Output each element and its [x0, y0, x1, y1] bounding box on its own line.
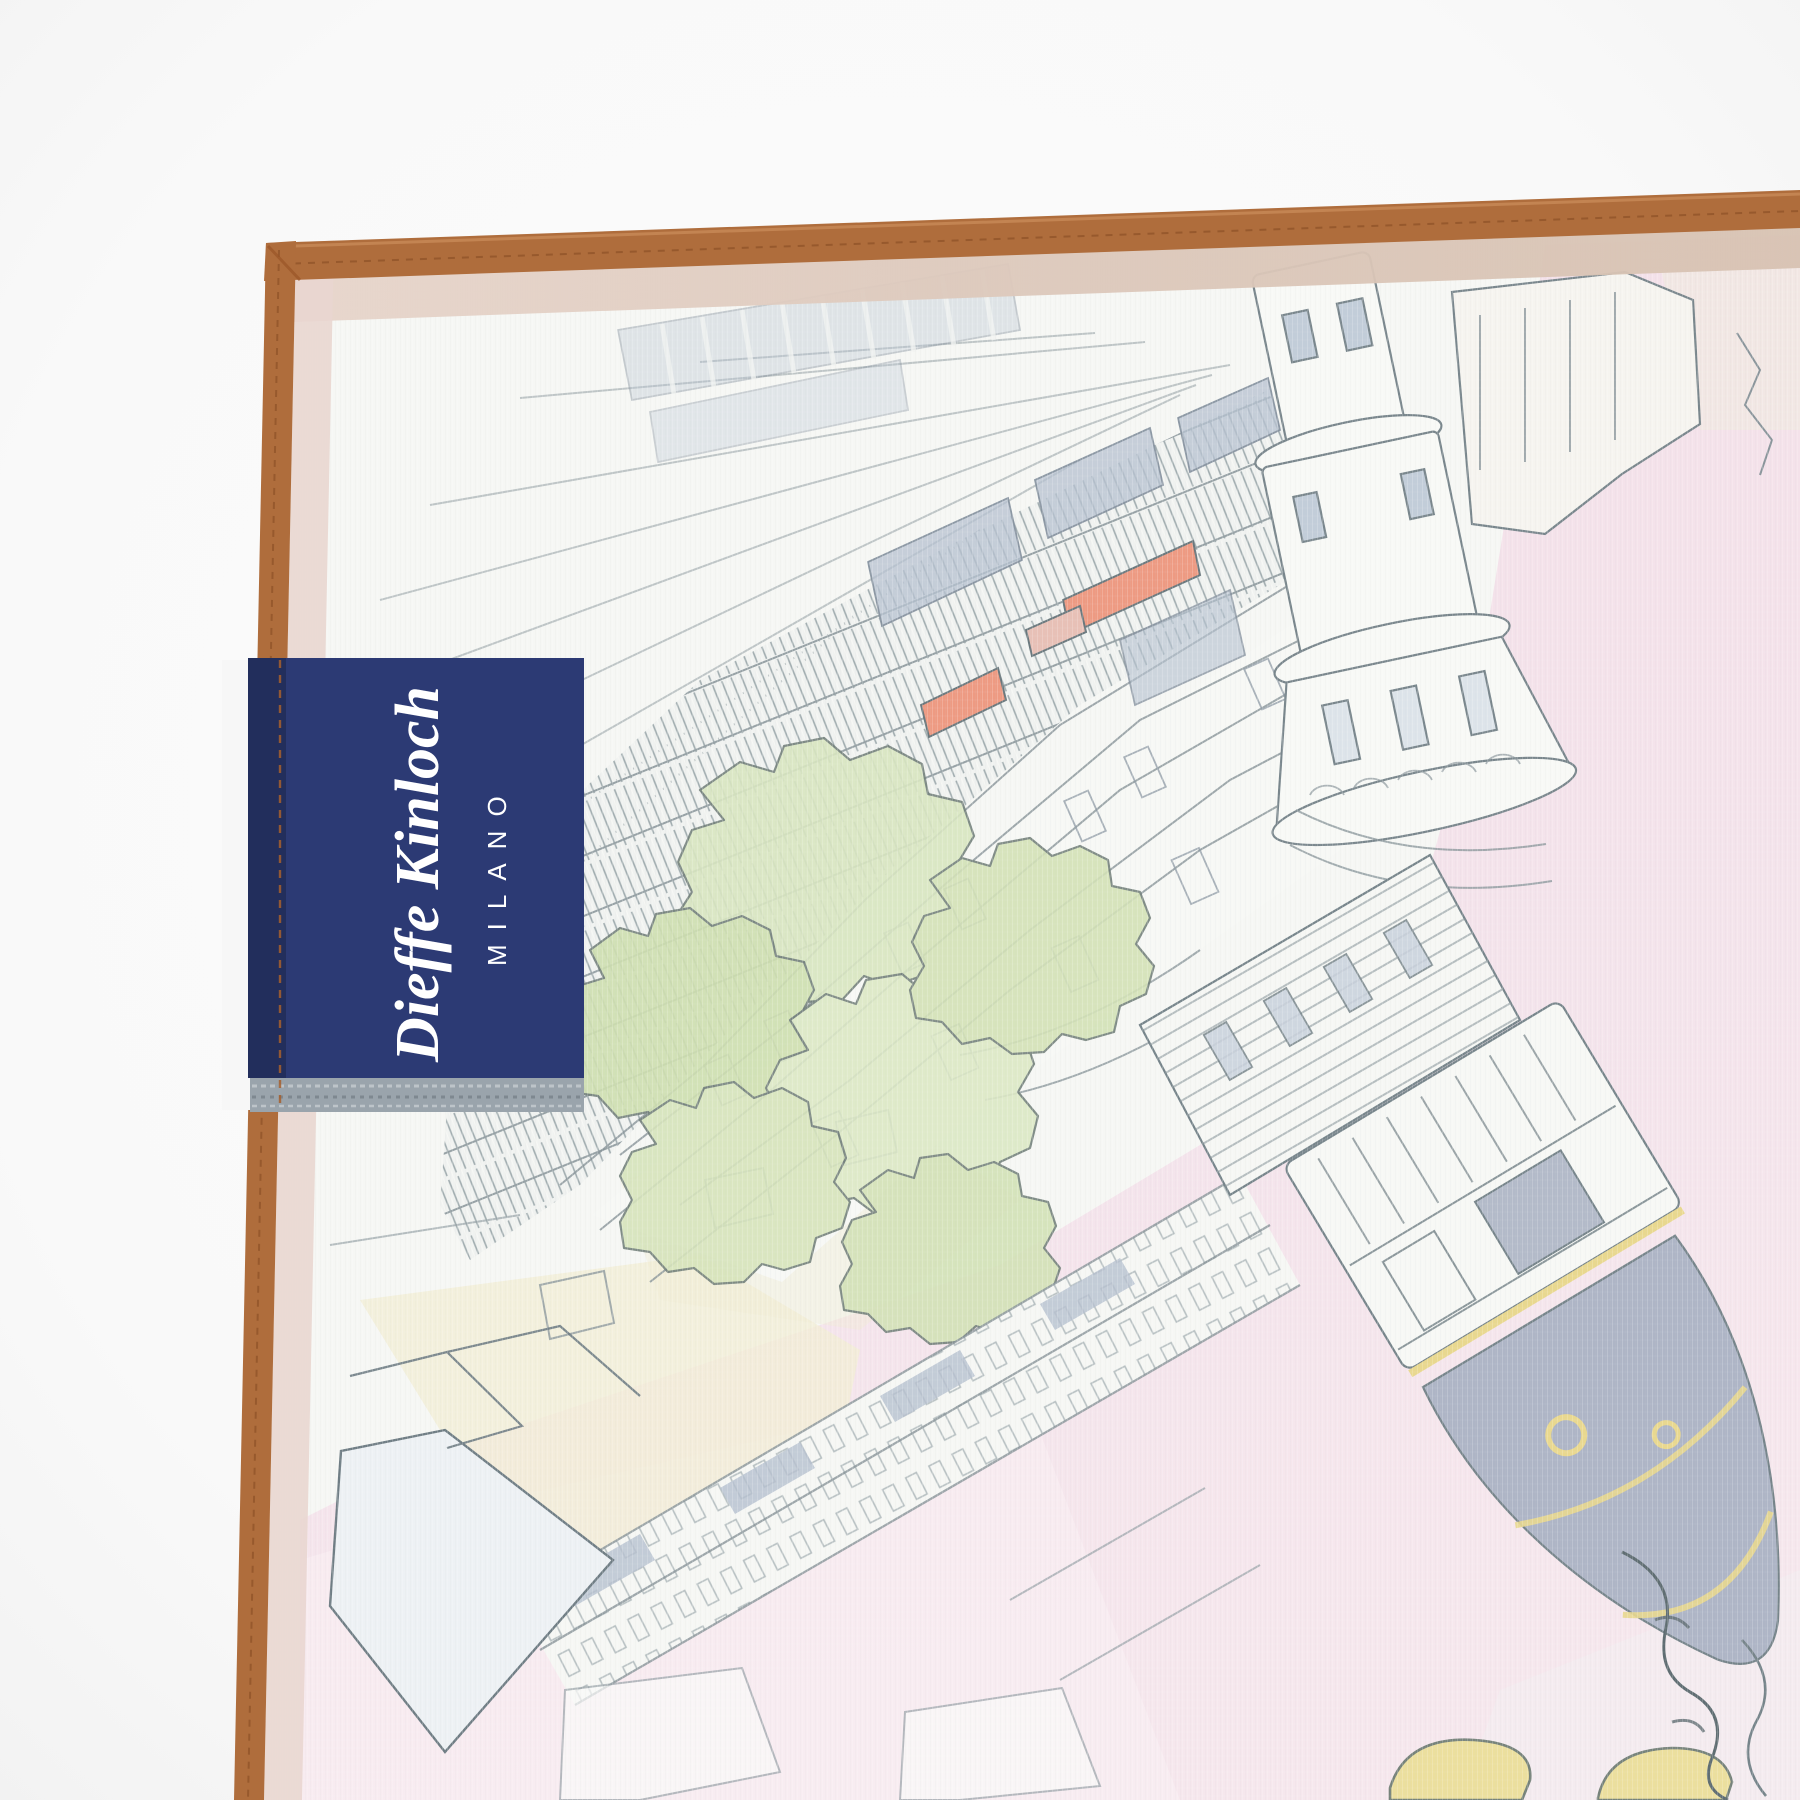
svg-text:MILANO: MILANO: [482, 782, 512, 966]
svg-text:Dieffe Kinloch: Dieffe Kinloch: [384, 686, 452, 1063]
